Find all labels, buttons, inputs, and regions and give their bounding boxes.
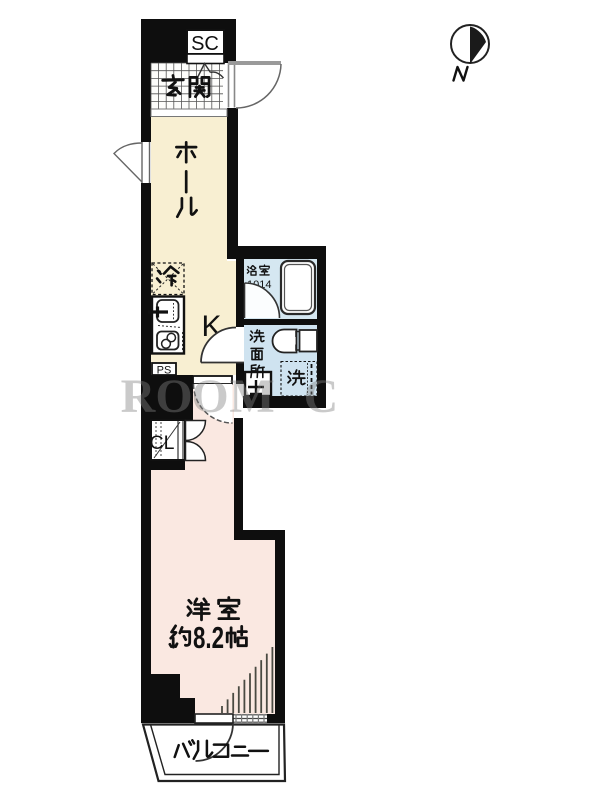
svg-text:O: O — [155, 370, 192, 423]
svg-text:M: M — [229, 370, 274, 423]
svg-text:O: O — [191, 370, 228, 423]
svg-text:8.2: 8.2 — [193, 620, 224, 655]
svg-text:CL: CL — [150, 432, 175, 454]
svg-text:SC: SC — [191, 33, 219, 55]
svg-text:C: C — [304, 370, 339, 423]
svg-text:R: R — [121, 370, 157, 423]
